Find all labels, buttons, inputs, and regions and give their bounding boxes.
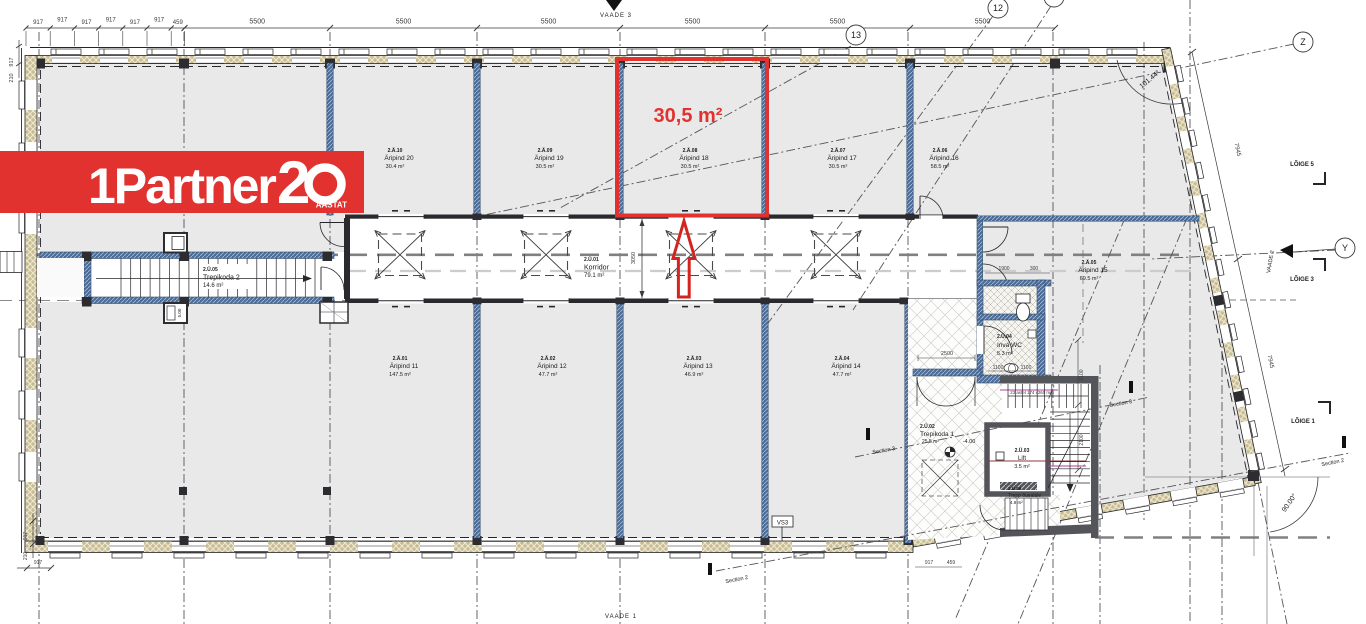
svg-text:5500: 5500 bbox=[541, 19, 557, 26]
svg-text:1Partner: 1Partner bbox=[88, 158, 276, 214]
svg-text:Äripind 16: Äripind 16 bbox=[929, 154, 959, 162]
svg-text:47.7 m²: 47.7 m² bbox=[539, 372, 558, 378]
svg-text:917: 917 bbox=[925, 560, 934, 566]
svg-text:13: 13 bbox=[851, 30, 861, 40]
svg-text:2.Ü.03: 2.Ü.03 bbox=[1015, 447, 1030, 454]
svg-text:2.Ü.06: 2.Ü.06 bbox=[1008, 485, 1022, 491]
svg-text:2.Ä.09: 2.Ä.09 bbox=[538, 147, 553, 154]
svg-text:Äripind 18: Äripind 18 bbox=[679, 154, 709, 162]
svg-text:5500: 5500 bbox=[975, 19, 991, 26]
svg-text:LÕIGE 1: LÕIGE 1 bbox=[1291, 418, 1315, 425]
svg-text:Äripind 20: Äripind 20 bbox=[384, 154, 414, 162]
svg-text:46.9 m²: 46.9 m² bbox=[685, 372, 704, 378]
svg-text:917: 917 bbox=[23, 532, 29, 541]
svg-text:917: 917 bbox=[33, 20, 44, 26]
svg-text:30.5 m²: 30.5 m² bbox=[536, 164, 555, 170]
svg-text:5500: 5500 bbox=[830, 19, 846, 26]
svg-text:2.Ä.04: 2.Ä.04 bbox=[835, 355, 850, 362]
svg-text:3050: 3050 bbox=[631, 252, 637, 264]
svg-text:2.Ä.05: 2.Ä.05 bbox=[1082, 259, 1097, 266]
svg-text:459: 459 bbox=[947, 560, 956, 566]
svg-text:14.6 m²: 14.6 m² bbox=[203, 283, 223, 289]
svg-text:23 astet 174 x260 mm: 23 astet 174 x260 mm bbox=[1010, 390, 1054, 395]
svg-text:AASTAT: AASTAT bbox=[316, 201, 347, 210]
svg-text:Äripind 19: Äripind 19 bbox=[534, 154, 564, 162]
svg-text:5500: 5500 bbox=[396, 19, 412, 26]
svg-text:69.5 m²: 69.5 m² bbox=[1080, 276, 1099, 282]
svg-text:2.Ä.02: 2.Ä.02 bbox=[541, 355, 556, 362]
svg-text:147.5 m²: 147.5 m² bbox=[389, 372, 411, 378]
svg-text:2.Ü.04: 2.Ü.04 bbox=[997, 333, 1012, 340]
svg-text:2.Ä.03: 2.Ä.03 bbox=[687, 355, 702, 362]
svg-text:47.7 m²: 47.7 m² bbox=[833, 372, 852, 378]
svg-text:1900: 1900 bbox=[998, 266, 1009, 272]
svg-text:Trepikoda 1: Trepikoda 1 bbox=[920, 431, 954, 438]
svg-text:VAADE 3: VAADE 3 bbox=[600, 13, 632, 19]
svg-text:2100: 2100 bbox=[1079, 434, 1085, 445]
svg-text:5500: 5500 bbox=[685, 19, 701, 26]
svg-text:2.Ä.10: 2.Ä.10 bbox=[388, 147, 403, 154]
svg-text:30.5 m²: 30.5 m² bbox=[681, 164, 700, 170]
svg-text:300: 300 bbox=[1030, 266, 1039, 272]
svg-text:2.Ä.08: 2.Ä.08 bbox=[683, 147, 698, 154]
svg-text:2.Ä.07: 2.Ä.07 bbox=[831, 147, 846, 154]
svg-text:2.Ü.05: 2.Ü.05 bbox=[203, 266, 218, 273]
svg-text:2500: 2500 bbox=[941, 351, 953, 357]
svg-text:Inva WC: Inva WC bbox=[997, 342, 1022, 349]
svg-text:5.00: 5.00 bbox=[177, 308, 182, 317]
svg-text:5500: 5500 bbox=[249, 19, 265, 26]
svg-text:Äripind 14: Äripind 14 bbox=[831, 362, 861, 370]
svg-text:79.1 m²: 79.1 m² bbox=[584, 273, 604, 279]
svg-text:Korridor: Korridor bbox=[584, 265, 610, 272]
svg-text:25.5 m²: 25.5 m² bbox=[922, 439, 939, 445]
svg-text:2.Ü.01: 2.Ü.01 bbox=[584, 256, 599, 263]
svg-text:1100: 1100 bbox=[1021, 365, 1032, 371]
svg-text:917: 917 bbox=[81, 20, 92, 26]
svg-text:LÕIGE 5: LÕIGE 5 bbox=[1290, 161, 1314, 168]
svg-text:2.Ä.01: 2.Ä.01 bbox=[393, 355, 408, 362]
svg-text:30,5 m²: 30,5 m² bbox=[654, 105, 723, 127]
svg-text:1100: 1100 bbox=[993, 365, 1004, 371]
svg-text:917: 917 bbox=[9, 57, 15, 66]
svg-text:Trepikoda 2: Trepikoda 2 bbox=[203, 275, 240, 282]
svg-text:917: 917 bbox=[57, 18, 68, 24]
svg-text:210: 210 bbox=[23, 552, 29, 561]
svg-text:-4.00: -4.00 bbox=[963, 439, 976, 445]
svg-text:917: 917 bbox=[34, 560, 43, 566]
svg-text:VAADE 1: VAADE 1 bbox=[605, 614, 637, 620]
svg-text:Z: Z bbox=[1300, 37, 1306, 47]
svg-text:917: 917 bbox=[154, 18, 165, 24]
svg-text:12: 12 bbox=[993, 3, 1003, 13]
svg-text:2100: 2100 bbox=[1079, 369, 1085, 380]
svg-text:917: 917 bbox=[106, 18, 117, 24]
svg-text:LÕIGE 3: LÕIGE 3 bbox=[1290, 276, 1314, 283]
svg-text:Trepp õuealale: Trepp õuealale bbox=[1008, 493, 1041, 499]
svg-text:5.3 m²: 5.3 m² bbox=[997, 351, 1013, 357]
svg-text:Äripind 12: Äripind 12 bbox=[537, 362, 567, 370]
svg-text:Y: Y bbox=[1342, 243, 1348, 253]
svg-text:Äripind 13: Äripind 13 bbox=[683, 362, 713, 370]
svg-text:30.4 m²: 30.4 m² bbox=[386, 164, 405, 170]
svg-text:459: 459 bbox=[173, 20, 184, 26]
svg-text:58.5 m²: 58.5 m² bbox=[931, 164, 950, 170]
svg-text:VS3: VS3 bbox=[777, 521, 789, 527]
svg-text:Äripind 17: Äripind 17 bbox=[827, 154, 857, 162]
svg-text:2.Ü.02: 2.Ü.02 bbox=[920, 423, 935, 430]
svg-text:Äripind 11: Äripind 11 bbox=[390, 362, 419, 370]
svg-text:3.5 m²: 3.5 m² bbox=[1014, 464, 1030, 470]
svg-text:210: 210 bbox=[9, 73, 15, 82]
svg-text:917: 917 bbox=[130, 20, 141, 26]
svg-text:30.5 m²: 30.5 m² bbox=[829, 164, 848, 170]
svg-text:4.8 m²: 4.8 m² bbox=[1010, 500, 1023, 505]
svg-text:2.Ä.06: 2.Ä.06 bbox=[933, 147, 948, 154]
